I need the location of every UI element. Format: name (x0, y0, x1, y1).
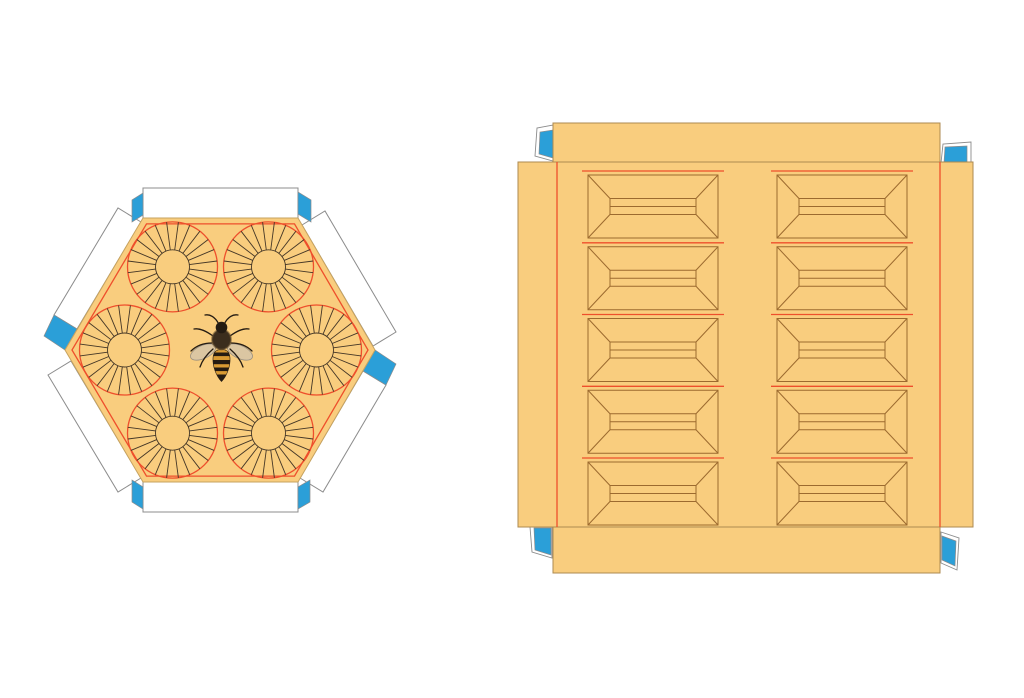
bottom-glue-flap (143, 482, 298, 512)
blue-tuck-tab-top-right (298, 192, 311, 222)
blue-tuck-tab-top-left (132, 193, 143, 222)
bee-head (216, 322, 228, 334)
blue-tuck-tab-bottom-left (132, 480, 143, 509)
top-glue-flap (143, 188, 298, 218)
box-bottom-flap (553, 527, 940, 573)
blue-tuck-tab-bottom-right (298, 480, 310, 509)
hex-lid-template (44, 188, 396, 512)
papercraft-sheet (0, 0, 1024, 698)
box-body-template (518, 123, 973, 573)
box-main-panel (518, 162, 973, 527)
blue-tuck-tab-box-top-left (539, 130, 553, 158)
blue-tuck-tab-box-top-right (944, 146, 967, 163)
papercraft-templates-canvas (0, 0, 1024, 698)
box-top-flap (553, 123, 940, 162)
